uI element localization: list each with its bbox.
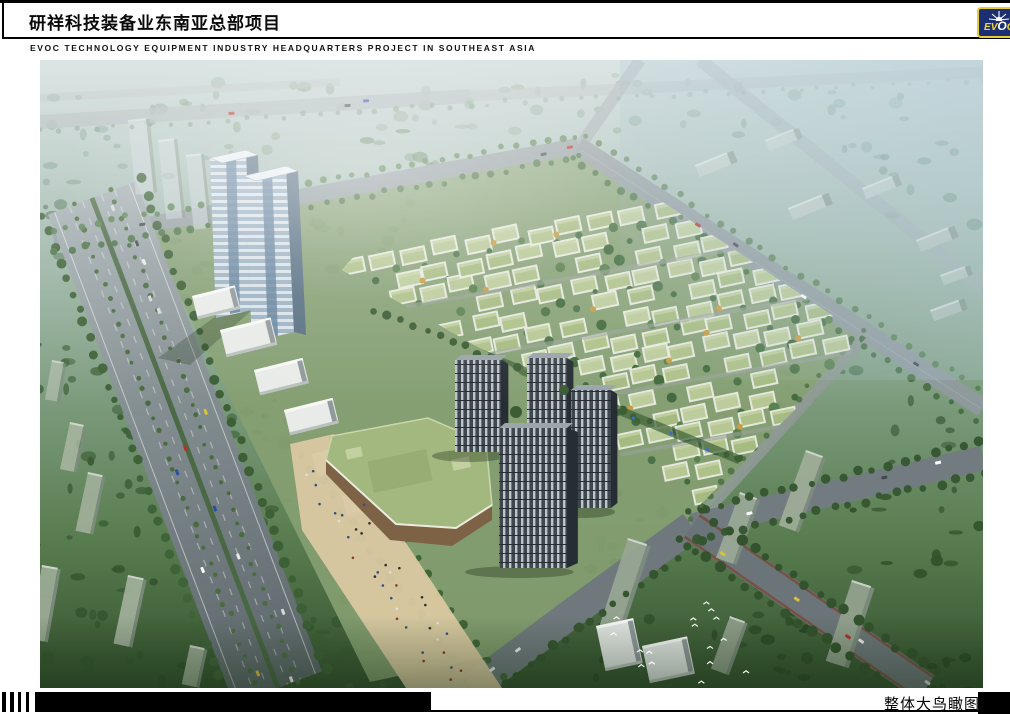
footer-rule-line [35, 710, 1010, 712]
presentation-board: 研祥科技装备业东南亚总部项目 EVOC TECHNOLOGY EQUIPMENT… [0, 0, 1010, 714]
footer-black-bar [35, 692, 431, 711]
header-divider [2, 37, 1010, 39]
evoc-logo-text: EVOC [979, 20, 1010, 33]
barcode-mark [26, 692, 29, 712]
project-title-cn: 研祥科技装备业东南亚总部项目 [29, 15, 281, 34]
barcode-mark [10, 692, 14, 712]
header-left-tick [2, 3, 4, 37]
aerial-rendering-svg [40, 60, 983, 688]
barcode-mark [2, 692, 6, 712]
project-title-en: EVOC TECHNOLOGY EQUIPMENT INDUSTRY HEADQ… [30, 43, 536, 53]
barcode-mark [18, 692, 21, 712]
top-rule-bar [0, 0, 1010, 3]
footer-corner-block [978, 692, 1010, 714]
evoc-logo: EVOC [977, 7, 1010, 38]
drawing-caption: 整体大鸟瞰图 [884, 693, 980, 714]
aerial-rendering [40, 60, 983, 688]
